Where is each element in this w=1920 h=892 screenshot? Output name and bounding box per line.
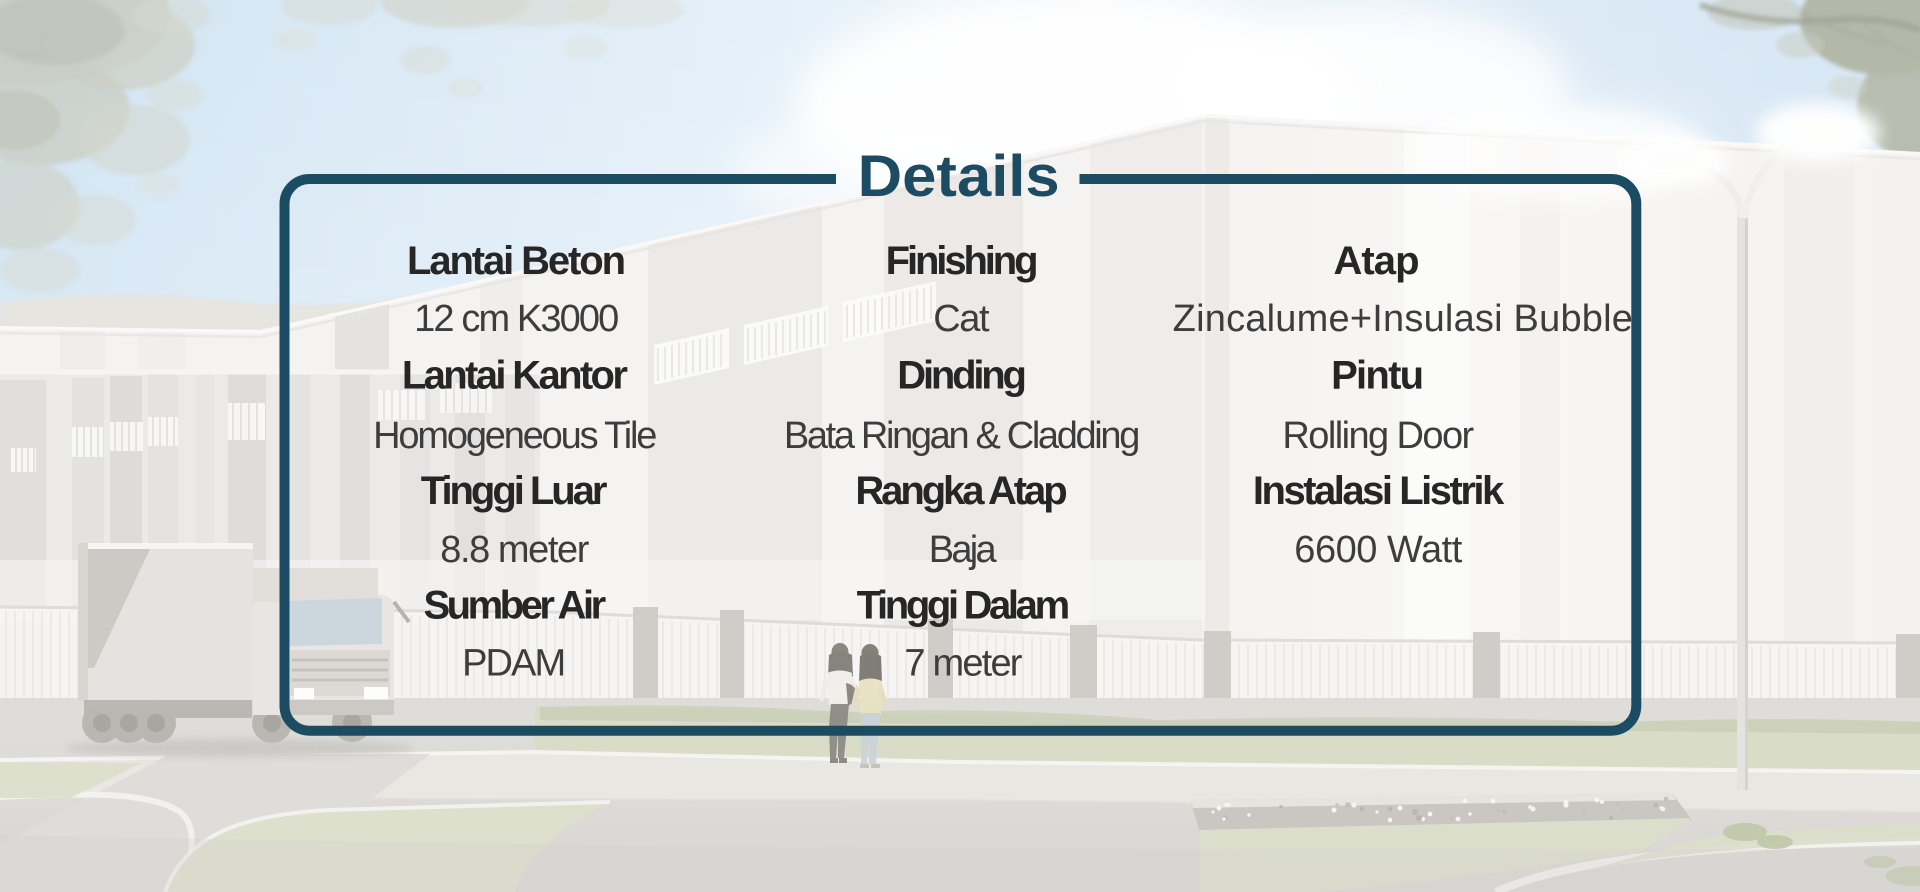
svg-text:Rolling Door: Rolling Door <box>1282 415 1474 457</box>
svg-text:8.8 meter: 8.8 meter <box>440 529 589 571</box>
svg-text:Dinding: Dinding <box>897 354 1027 398</box>
svg-text:Zincalume+Insulasi Bubble: Zincalume+Insulasi Bubble <box>1173 298 1633 340</box>
svg-text:Instalasi Listrik: Instalasi Listrik <box>1253 469 1505 513</box>
svg-text:Details: Details <box>858 144 1060 209</box>
svg-text:Baja: Baja <box>929 529 998 571</box>
svg-text:12 cm K3000: 12 cm K3000 <box>414 298 619 340</box>
svg-text:Tinggi Dalam: Tinggi Dalam <box>857 584 1071 628</box>
svg-text:Finishing: Finishing <box>886 239 1039 283</box>
svg-text:Homogeneous Tile: Homogeneous Tile <box>373 415 657 457</box>
svg-text:Lantai Beton: Lantai Beton <box>407 239 626 283</box>
svg-text:Pintu: Pintu <box>1331 354 1424 398</box>
svg-text:Lantai Kantor: Lantai Kantor <box>402 354 628 398</box>
svg-text:Rangka Atap: Rangka Atap <box>855 469 1067 513</box>
svg-text:Bata Ringan & Cladding: Bata Ringan & Cladding <box>784 415 1141 457</box>
svg-text:7 meter: 7 meter <box>904 642 1022 684</box>
svg-text:Atap: Atap <box>1333 239 1419 283</box>
svg-text:Sumber Air: Sumber Air <box>423 584 606 628</box>
svg-text:Tinggi Luar: Tinggi Luar <box>421 469 608 513</box>
svg-text:6600 Watt: 6600 Watt <box>1294 529 1462 571</box>
svg-text:Cat: Cat <box>933 298 990 340</box>
svg-text:PDAM: PDAM <box>462 642 566 684</box>
